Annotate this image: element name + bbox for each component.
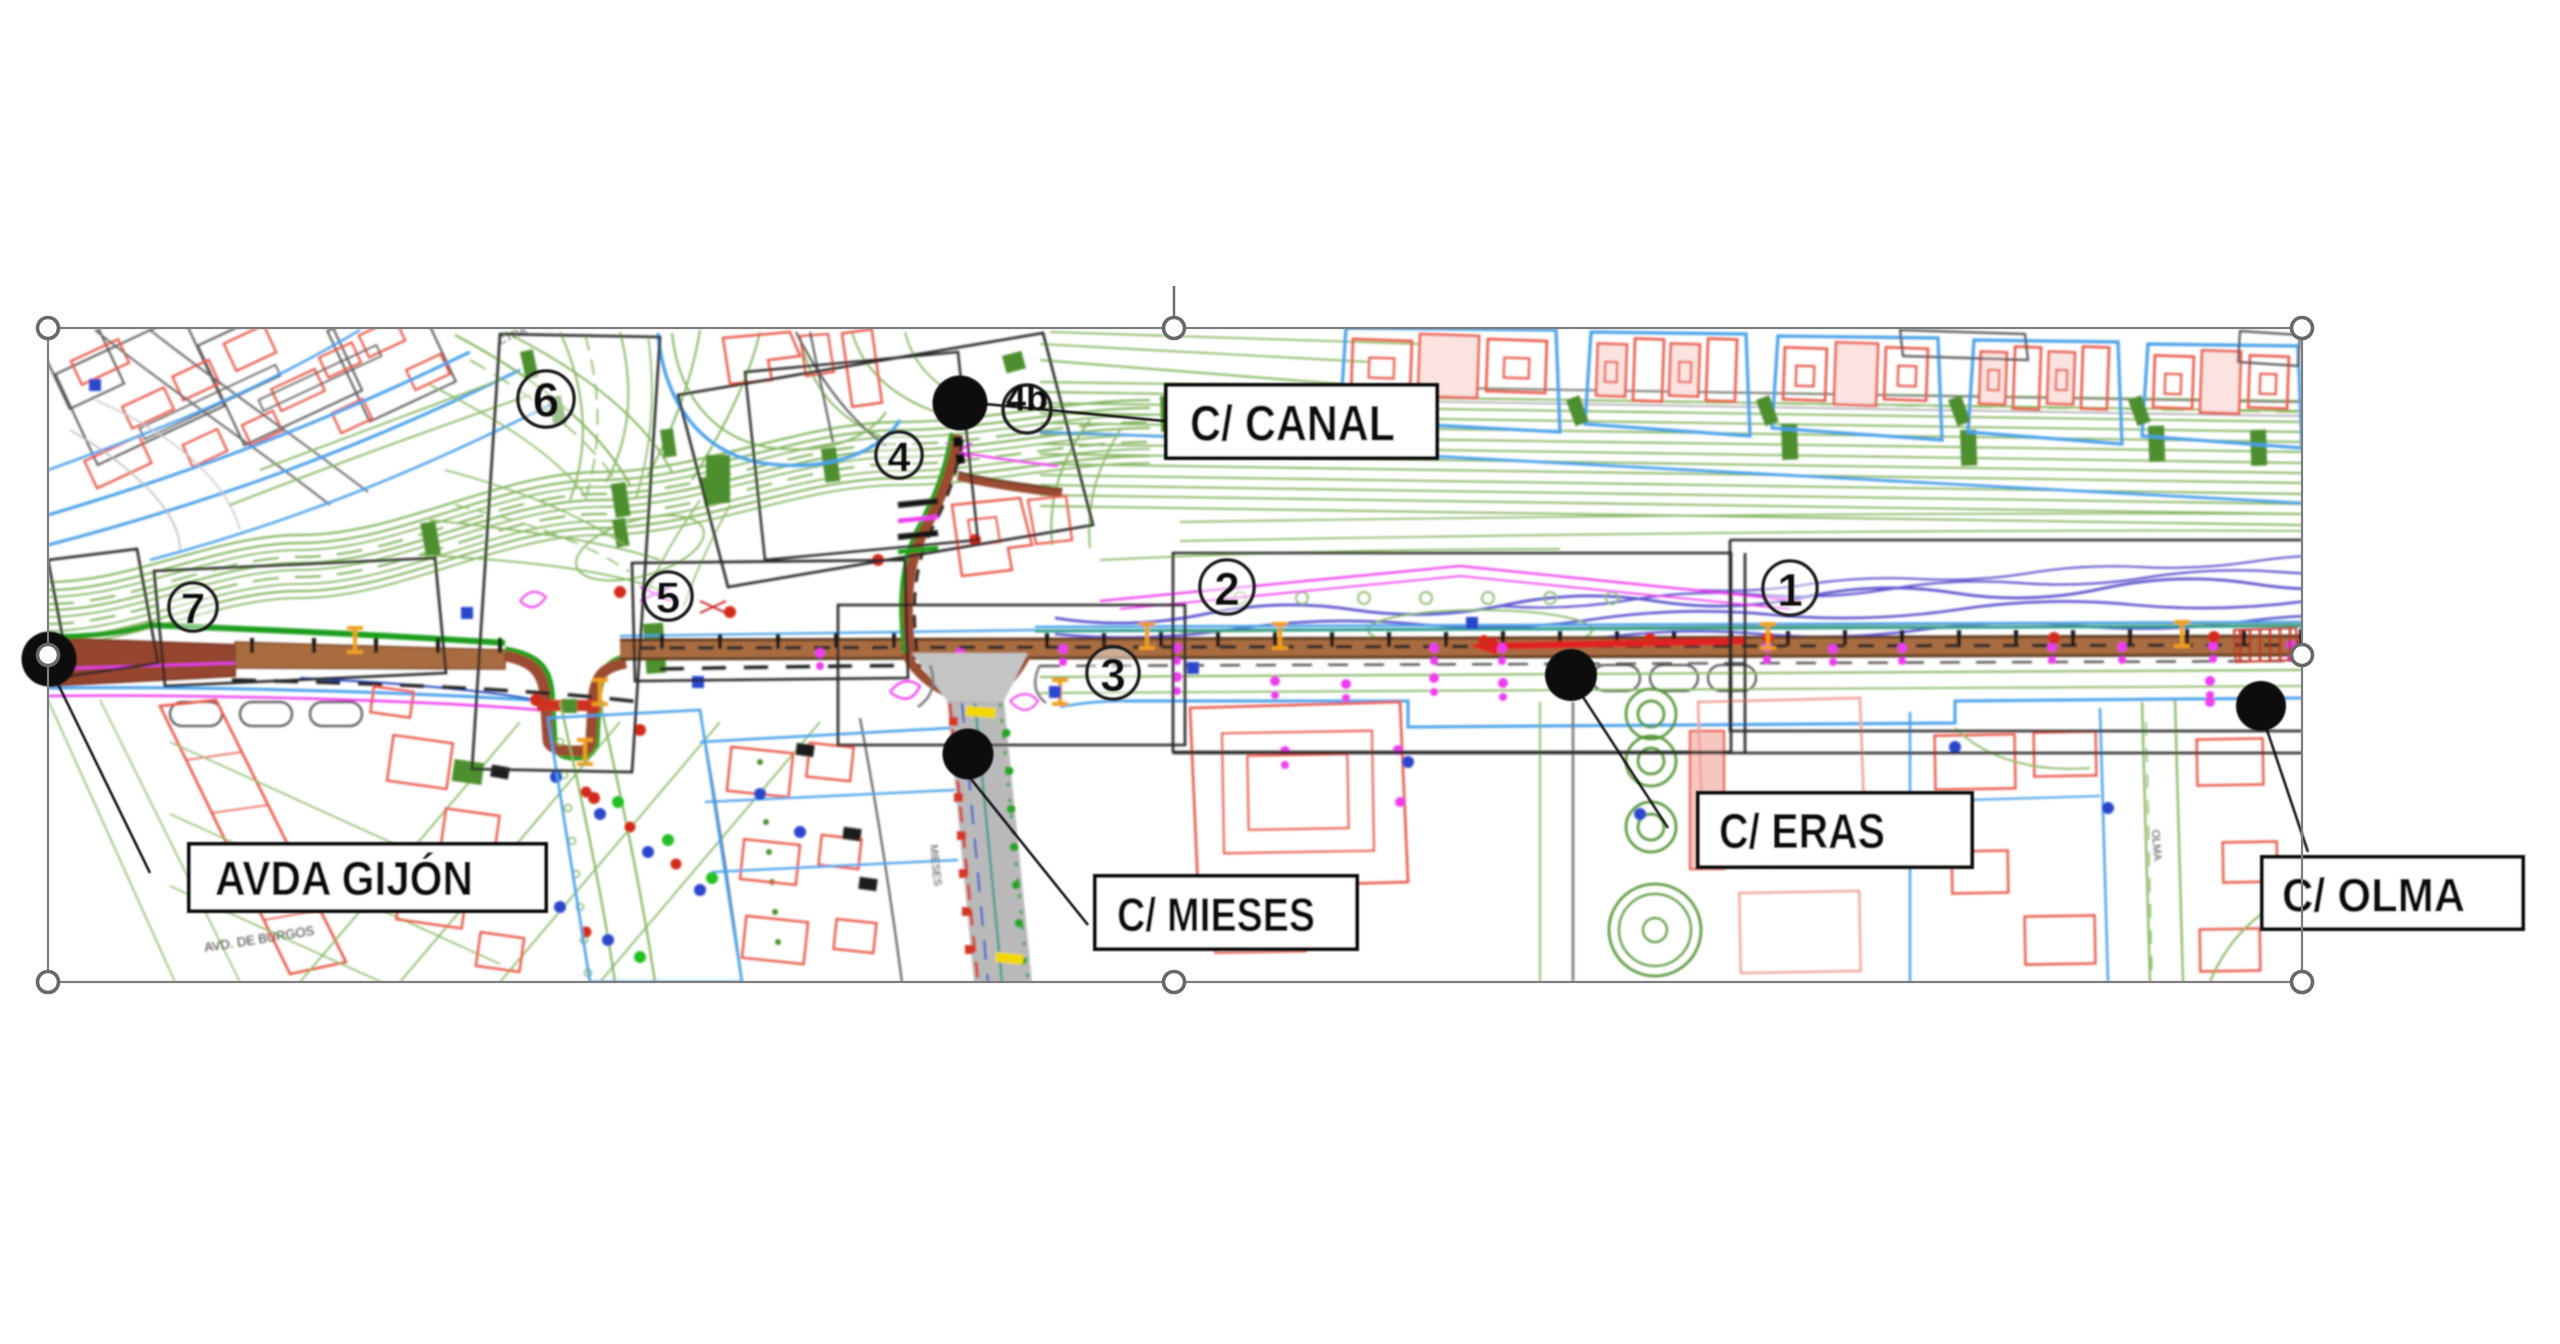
svg-text:C/ MIESES: C/ MIESES (1117, 888, 1315, 941)
svg-text:1: 1 (1777, 564, 1803, 616)
svg-text:4: 4 (887, 434, 911, 481)
svg-text:5: 5 (656, 574, 680, 623)
svg-text:3: 3 (1100, 649, 1126, 701)
svg-text:C/ CANAL: C/ CANAL (1190, 396, 1395, 452)
svg-text:4b: 4b (1006, 378, 1048, 419)
svg-text:C/ ERAS: C/ ERAS (1719, 805, 1885, 859)
svg-text:2: 2 (1214, 563, 1240, 615)
svg-text:6: 6 (533, 375, 560, 428)
svg-text:C/ OLMA: C/ OLMA (2282, 869, 2465, 922)
svg-text:AVDA GIJÓN: AVDA GIJÓN (215, 851, 473, 906)
svg-text:7: 7 (181, 585, 205, 634)
svg-text:OLMA: OLMA (2149, 829, 2163, 862)
